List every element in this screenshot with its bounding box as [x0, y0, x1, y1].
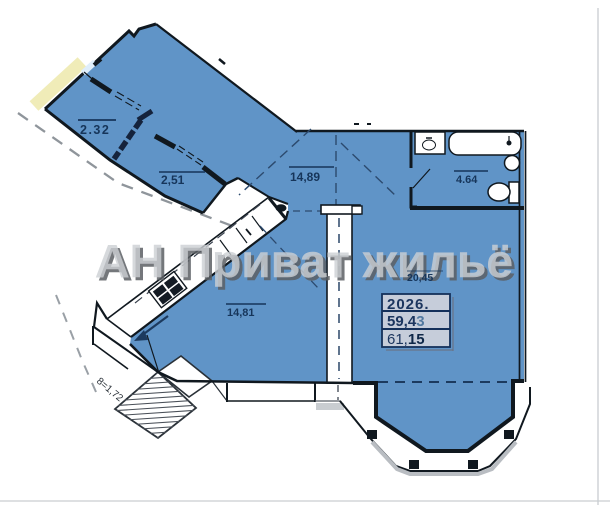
svg-text:АН Приват жильё: АН Приват жильё: [95, 235, 513, 287]
svg-text:4.64: 4.64: [456, 174, 478, 186]
svg-text:2,51: 2,51: [161, 173, 185, 187]
svg-text:20,45: 20,45: [407, 272, 433, 284]
svg-text:2.32: 2.32: [80, 123, 110, 137]
svg-text:14,89: 14,89: [290, 170, 320, 184]
svg-text:2026.: 2026.: [387, 296, 430, 313]
svg-text:14,81: 14,81: [227, 307, 255, 319]
svg-text:61,15: 61,15: [387, 331, 425, 348]
svg-text:59,43: 59,43: [387, 313, 425, 330]
